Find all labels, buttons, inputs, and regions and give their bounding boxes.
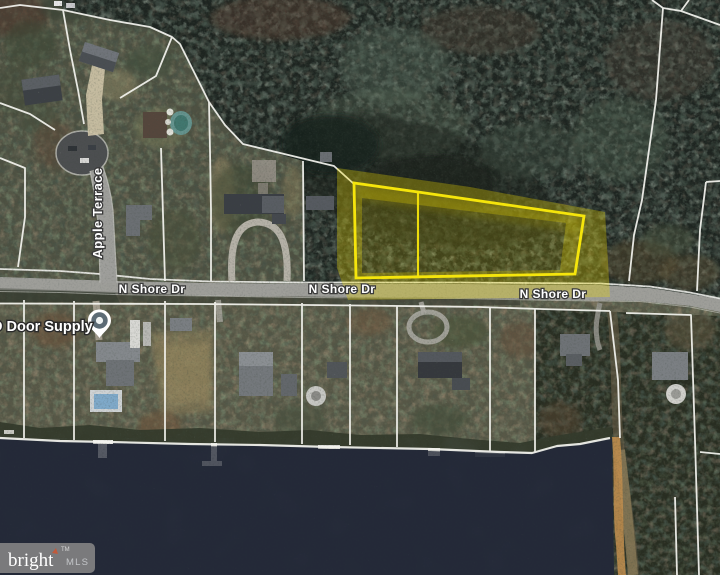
svg-text:TM: TM — [61, 547, 70, 553]
svg-text:N Shore Dr: N Shore Dr — [309, 282, 376, 296]
svg-text:MLS: MLS — [66, 557, 89, 568]
svg-text:N Shore Dr: N Shore Dr — [119, 282, 186, 296]
svg-text:D Door Supply: D Door Supply — [0, 319, 93, 335]
svg-text:N Shore Dr: N Shore Dr — [520, 287, 587, 301]
svg-text:bright: bright — [8, 550, 54, 571]
svg-text:Apple Terrace: Apple Terrace — [90, 168, 105, 259]
